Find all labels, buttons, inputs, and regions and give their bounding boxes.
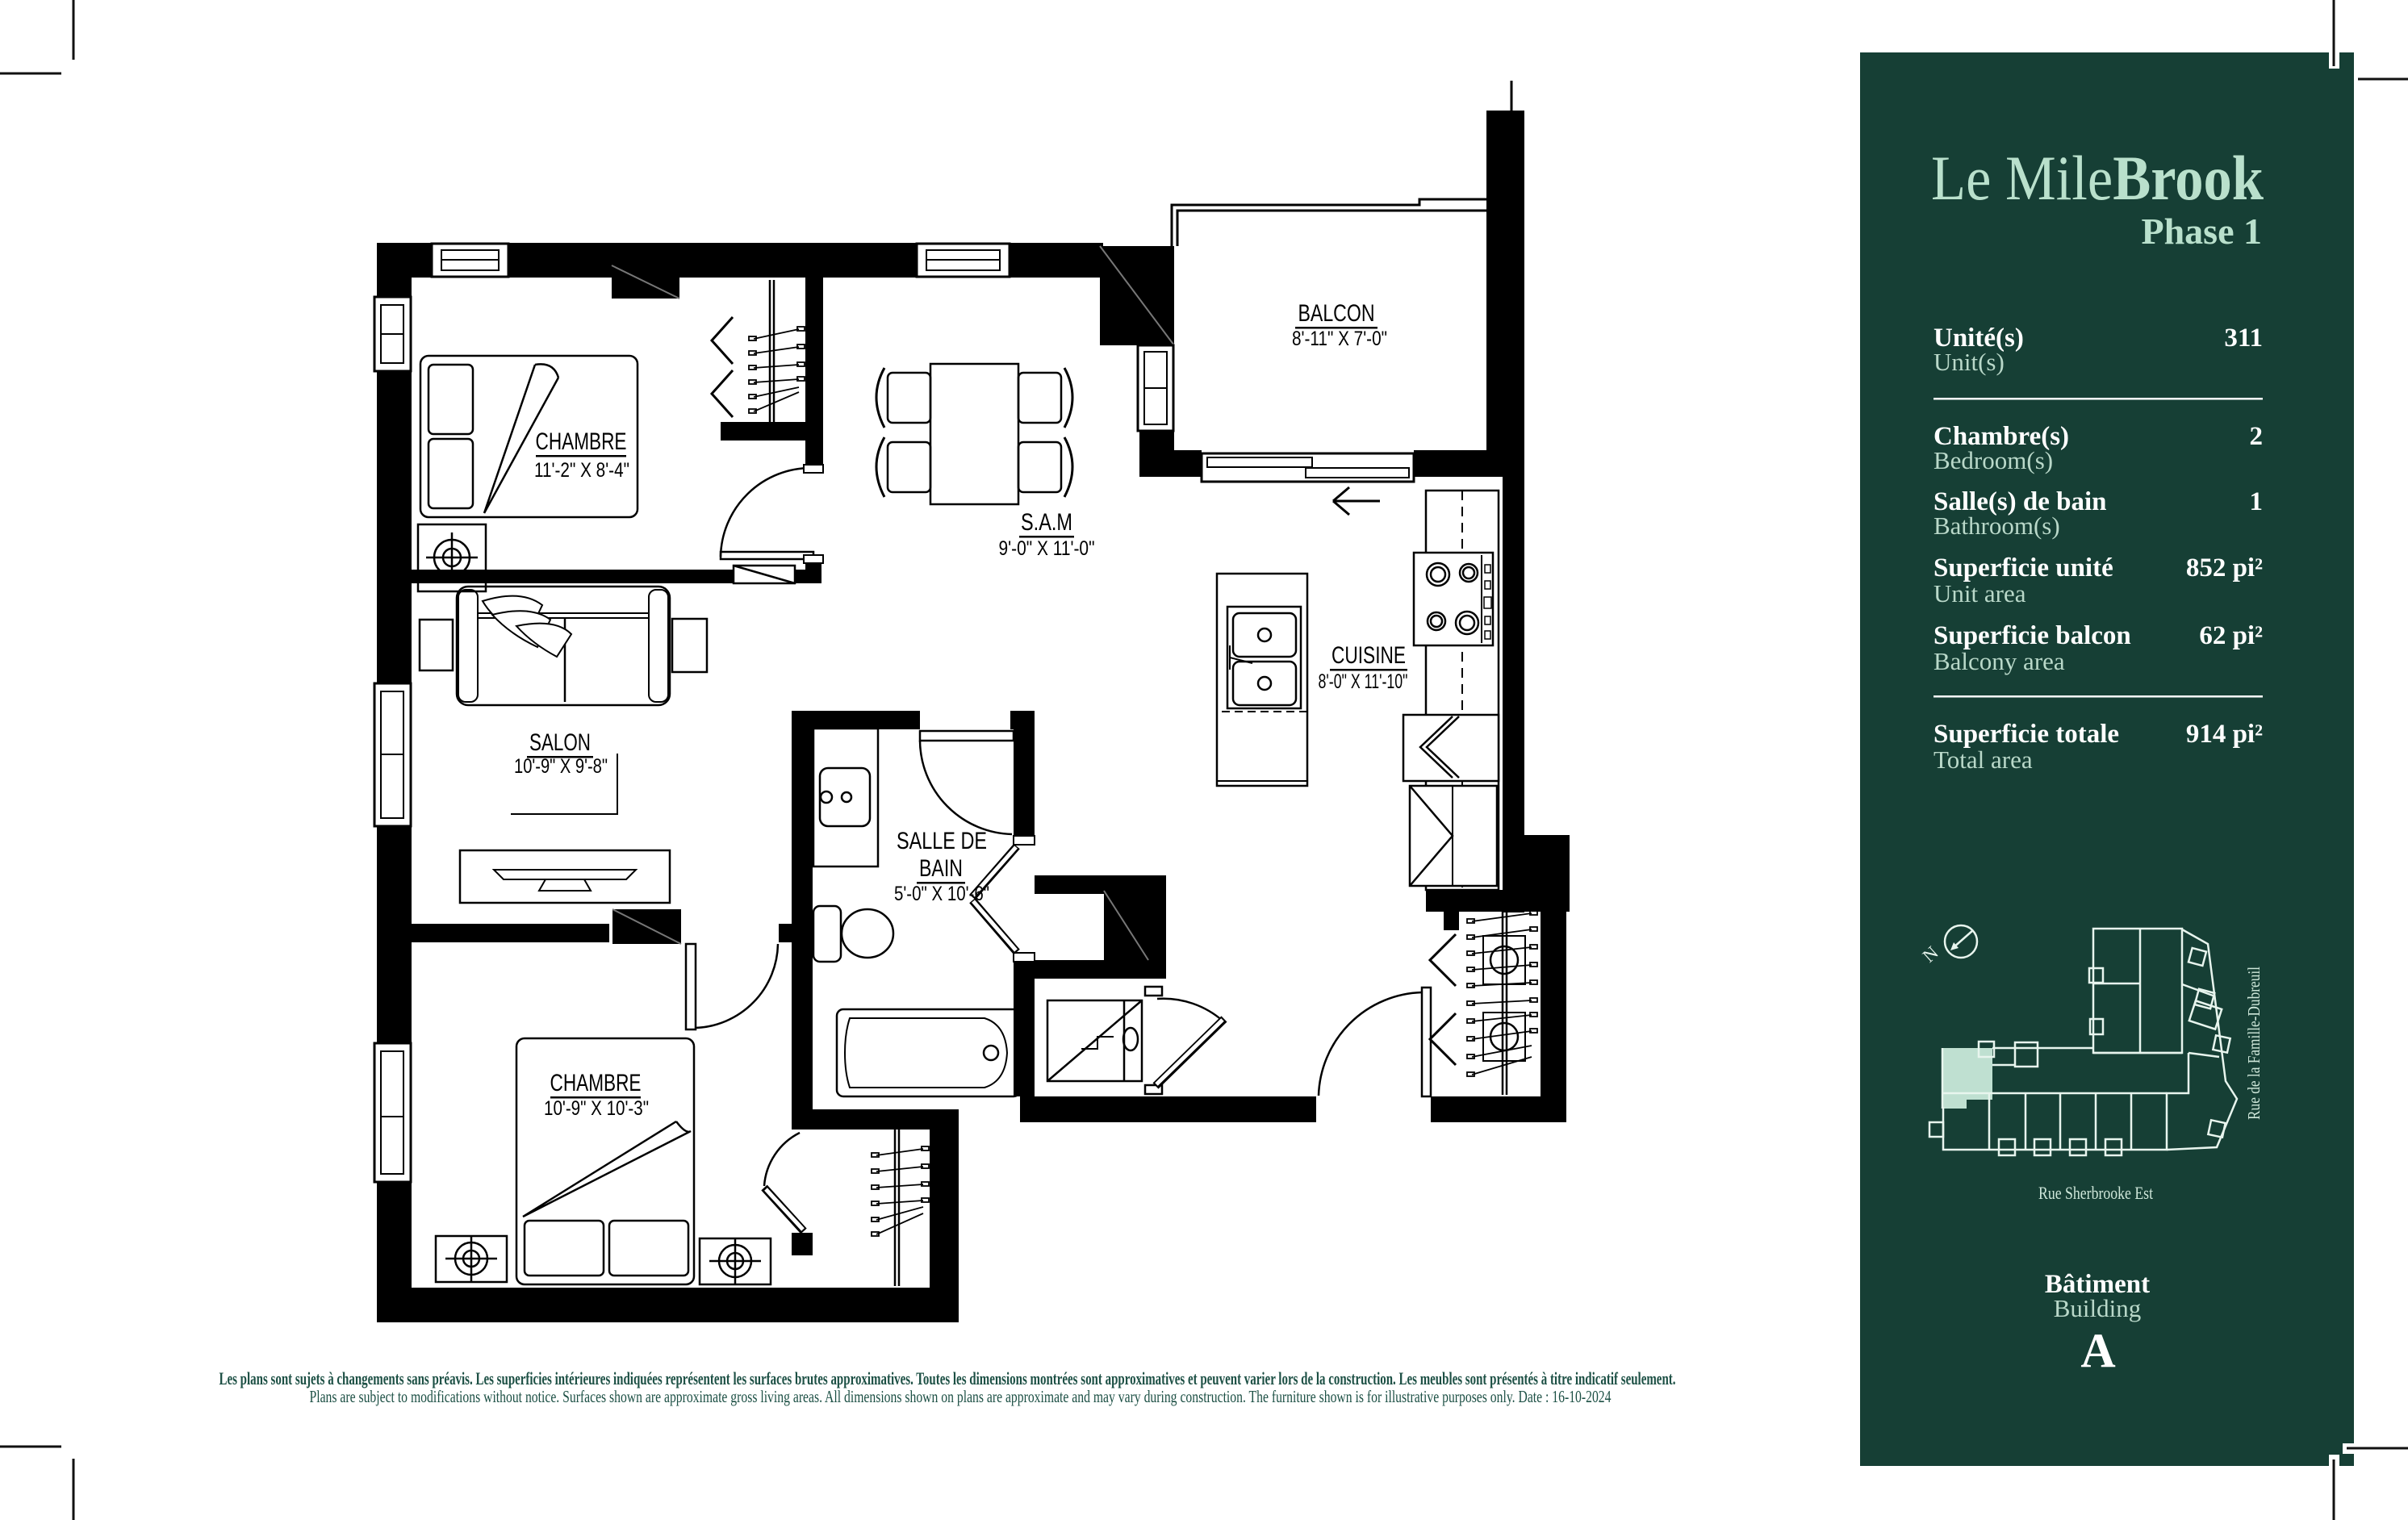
svg-text:Rue de la Famille-Dubreuil: Rue de la Famille-Dubreuil: [2244, 967, 2264, 1120]
svg-text:SALON: SALON: [529, 729, 591, 756]
svg-text:S.A.M: S.A.M: [1021, 509, 1072, 536]
svg-text:Balcony area: Balcony area: [1934, 647, 2065, 675]
svg-text:914 pi²: 914 pi²: [2186, 720, 2263, 749]
svg-text:Unit area: Unit area: [1934, 579, 2026, 608]
svg-text:Bathroom(s): Bathroom(s): [1934, 512, 2060, 540]
svg-text:311: 311: [2224, 324, 2263, 353]
svg-text:Superficie balcon: Superficie balcon: [1934, 621, 2131, 650]
svg-text:Le MileBrook: Le MileBrook: [1931, 143, 2264, 213]
svg-text:CHAMBRE: CHAMBRE: [550, 1070, 642, 1096]
svg-text:10'-9" X 10'-3": 10'-9" X 10'-3": [544, 1097, 649, 1120]
svg-text:Phase 1: Phase 1: [2142, 211, 2263, 252]
svg-text:Rue Sherbrooke Est: Rue Sherbrooke Est: [2038, 1183, 2153, 1203]
svg-text:Building: Building: [2054, 1294, 2142, 1322]
svg-text:SALLE DE: SALLE DE: [897, 828, 987, 854]
svg-text:1: 1: [2250, 487, 2264, 516]
svg-text:BAIN: BAIN: [919, 855, 963, 882]
svg-text:5'-0" X 10'-6": 5'-0" X 10'-6": [894, 883, 989, 905]
svg-text:Total area: Total area: [1934, 745, 2033, 774]
svg-text:Superficie totale: Superficie totale: [1934, 720, 2119, 749]
svg-text:8'-11" X 7'-0": 8'-11" X 7'-0": [1292, 328, 1387, 350]
svg-text:Unit(s): Unit(s): [1934, 348, 2005, 376]
svg-text:852 pi²: 852 pi²: [2186, 553, 2263, 583]
svg-text:10'-9" X 9'-8": 10'-9" X 9'-8": [514, 755, 608, 778]
svg-text:62 pi²: 62 pi²: [2199, 621, 2263, 650]
svg-text:9'-0" X 11'-0": 9'-0" X 11'-0": [999, 537, 1095, 560]
svg-text:Bedroom(s): Bedroom(s): [1934, 446, 2053, 474]
svg-text:CHAMBRE: CHAMBRE: [536, 428, 627, 455]
svg-text:CUISINE: CUISINE: [1332, 642, 1406, 669]
svg-text:8'-0" X 11'-10": 8'-0" X 11'-10": [1319, 670, 1408, 693]
svg-text:Plans are subject to modificat: Plans are subject to modifications witho…: [310, 1387, 1612, 1406]
svg-text:BALCON: BALCON: [1298, 300, 1375, 327]
svg-text:A: A: [2080, 1324, 2115, 1377]
svg-text:Les plans sont sujets à change: Les plans sont sujets à changements sans…: [219, 1368, 1676, 1388]
svg-text:11'-2" X 8'-4": 11'-2" X 8'-4": [534, 459, 629, 482]
svg-text:2: 2: [2250, 422, 2264, 451]
svg-text:Superficie unité: Superficie unité: [1934, 553, 2113, 583]
